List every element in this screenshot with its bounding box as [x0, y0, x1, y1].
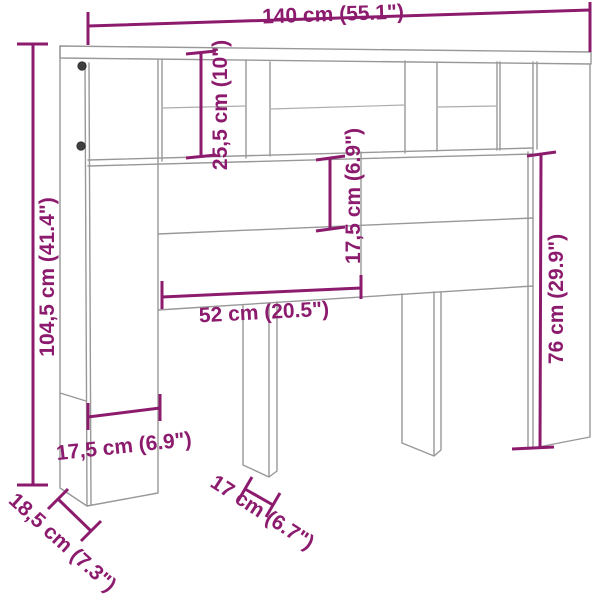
dimension-column-width: 17,5 cm (6.9") [55, 394, 193, 465]
dimension-height-left: 104,5 cm (41.4") [17, 44, 59, 485]
dimension-label: 140 cm (55.1") [262, 1, 405, 29]
dimension-line [88, 394, 160, 430]
dimension-opening-width: 52 cm (20.5") [162, 275, 361, 327]
right-leg [402, 292, 441, 456]
dimension-label: 104,5 cm (41.4") [36, 197, 59, 356]
dimension-label: 52 cm (20.5") [198, 298, 329, 328]
cubby-dividers [246, 60, 537, 448]
dimension-label: 17,5 cm (6.9") [55, 428, 193, 465]
headboard-drawing: 140 cm (55.1") 104,5 cm (41.4") 25,5 cm … [0, 0, 600, 600]
top-board [60, 46, 591, 64]
dimension-side-height: 76 cm (29.9") [512, 152, 568, 449]
left-leg [243, 302, 277, 477]
dimension-panel-height: 17,5 cm (6.9") [316, 128, 365, 264]
screw-hole [77, 142, 85, 150]
dimension-diagram: 140 cm (55.1") 104,5 cm (41.4") 25,5 cm … [0, 0, 600, 600]
cubby-shelf-band [88, 148, 533, 166]
left-side-panel [60, 46, 91, 506]
dimension-annotations: 140 cm (55.1") 104,5 cm (41.4") 25,5 cm … [4, 1, 590, 597]
dimension-depth: 18,5 cm (7.3") [4, 489, 120, 597]
dimension-leg-depth: 17 cm (6.7") [206, 471, 318, 555]
dimension-width-top: 140 cm (55.1") [88, 1, 590, 52]
dimension-label: 25,5 cm (10") [209, 40, 232, 170]
screw-hole [78, 62, 86, 70]
dimension-label: 17 cm (6.7") [206, 471, 318, 555]
dimension-label: 17,5 cm (6.9") [342, 128, 365, 264]
dimension-label: 76 cm (29.9") [545, 234, 568, 364]
dimension-line [316, 156, 345, 231]
